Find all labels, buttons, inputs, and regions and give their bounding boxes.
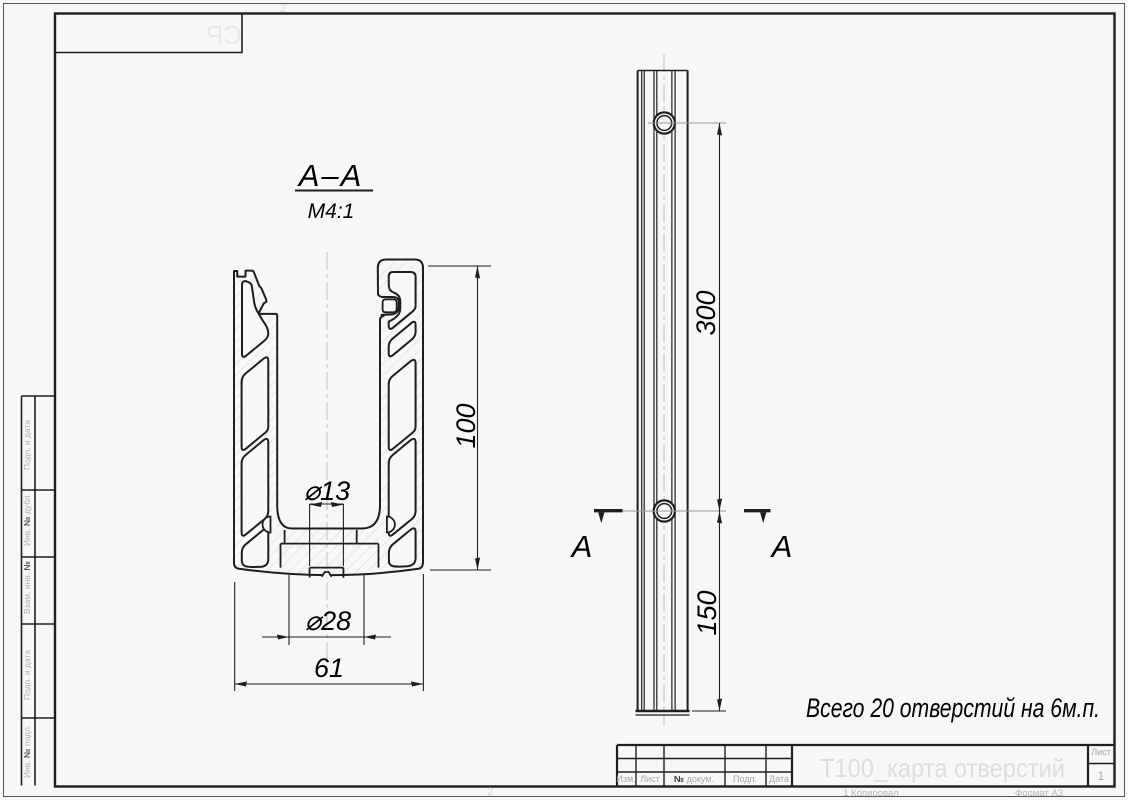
svg-text:СР: СР — [206, 20, 242, 50]
svg-text:Дата: Дата — [769, 774, 789, 784]
svg-text:Всего 20 отверстий на 6м.п.: Всего 20 отверстий на 6м.п. — [806, 693, 1100, 723]
svg-text:№ докум.: № докум. — [674, 774, 714, 784]
svg-text:100: 100 — [451, 403, 481, 448]
svg-text:Взам. инв. №: Взам. инв. № — [22, 560, 32, 614]
svg-text:Подп. и дата: Подп. и дата — [22, 650, 32, 700]
svg-text:150: 150 — [692, 590, 722, 635]
svg-text:Подп.: Подп. — [733, 774, 757, 784]
svg-text:61: 61 — [314, 653, 344, 683]
svg-text:А: А — [570, 529, 593, 564]
svg-text:Лист: Лист — [640, 774, 660, 784]
svg-text:⌀13: ⌀13 — [304, 476, 350, 506]
svg-text:2: 2 — [487, 786, 493, 798]
svg-text:Формат А3: Формат А3 — [1015, 788, 1063, 799]
svg-text:Инв. № подл.: Инв. № подл. — [22, 725, 32, 778]
svg-text:Изм.: Изм. — [616, 774, 635, 784]
svg-text:А–А: А–А — [297, 158, 364, 193]
svg-text:1: 1 — [1098, 769, 1105, 783]
svg-text:Подп. и дата: Подп. и дата — [22, 420, 32, 470]
svg-text:Т100_карта отверстий: Т100_карта отверстий — [820, 753, 1065, 783]
svg-text:2: 2 — [280, 3, 286, 15]
svg-text:М4:1: М4:1 — [308, 200, 355, 223]
svg-text:1 Копировал: 1 Копировал — [843, 788, 899, 799]
svg-text:Инв. № дубл.: Инв. № дубл. — [22, 493, 32, 546]
svg-text:Лист: Лист — [1091, 747, 1111, 757]
svg-text:300: 300 — [691, 290, 721, 335]
svg-text:⌀28: ⌀28 — [305, 606, 351, 636]
svg-text:А: А — [770, 529, 793, 564]
